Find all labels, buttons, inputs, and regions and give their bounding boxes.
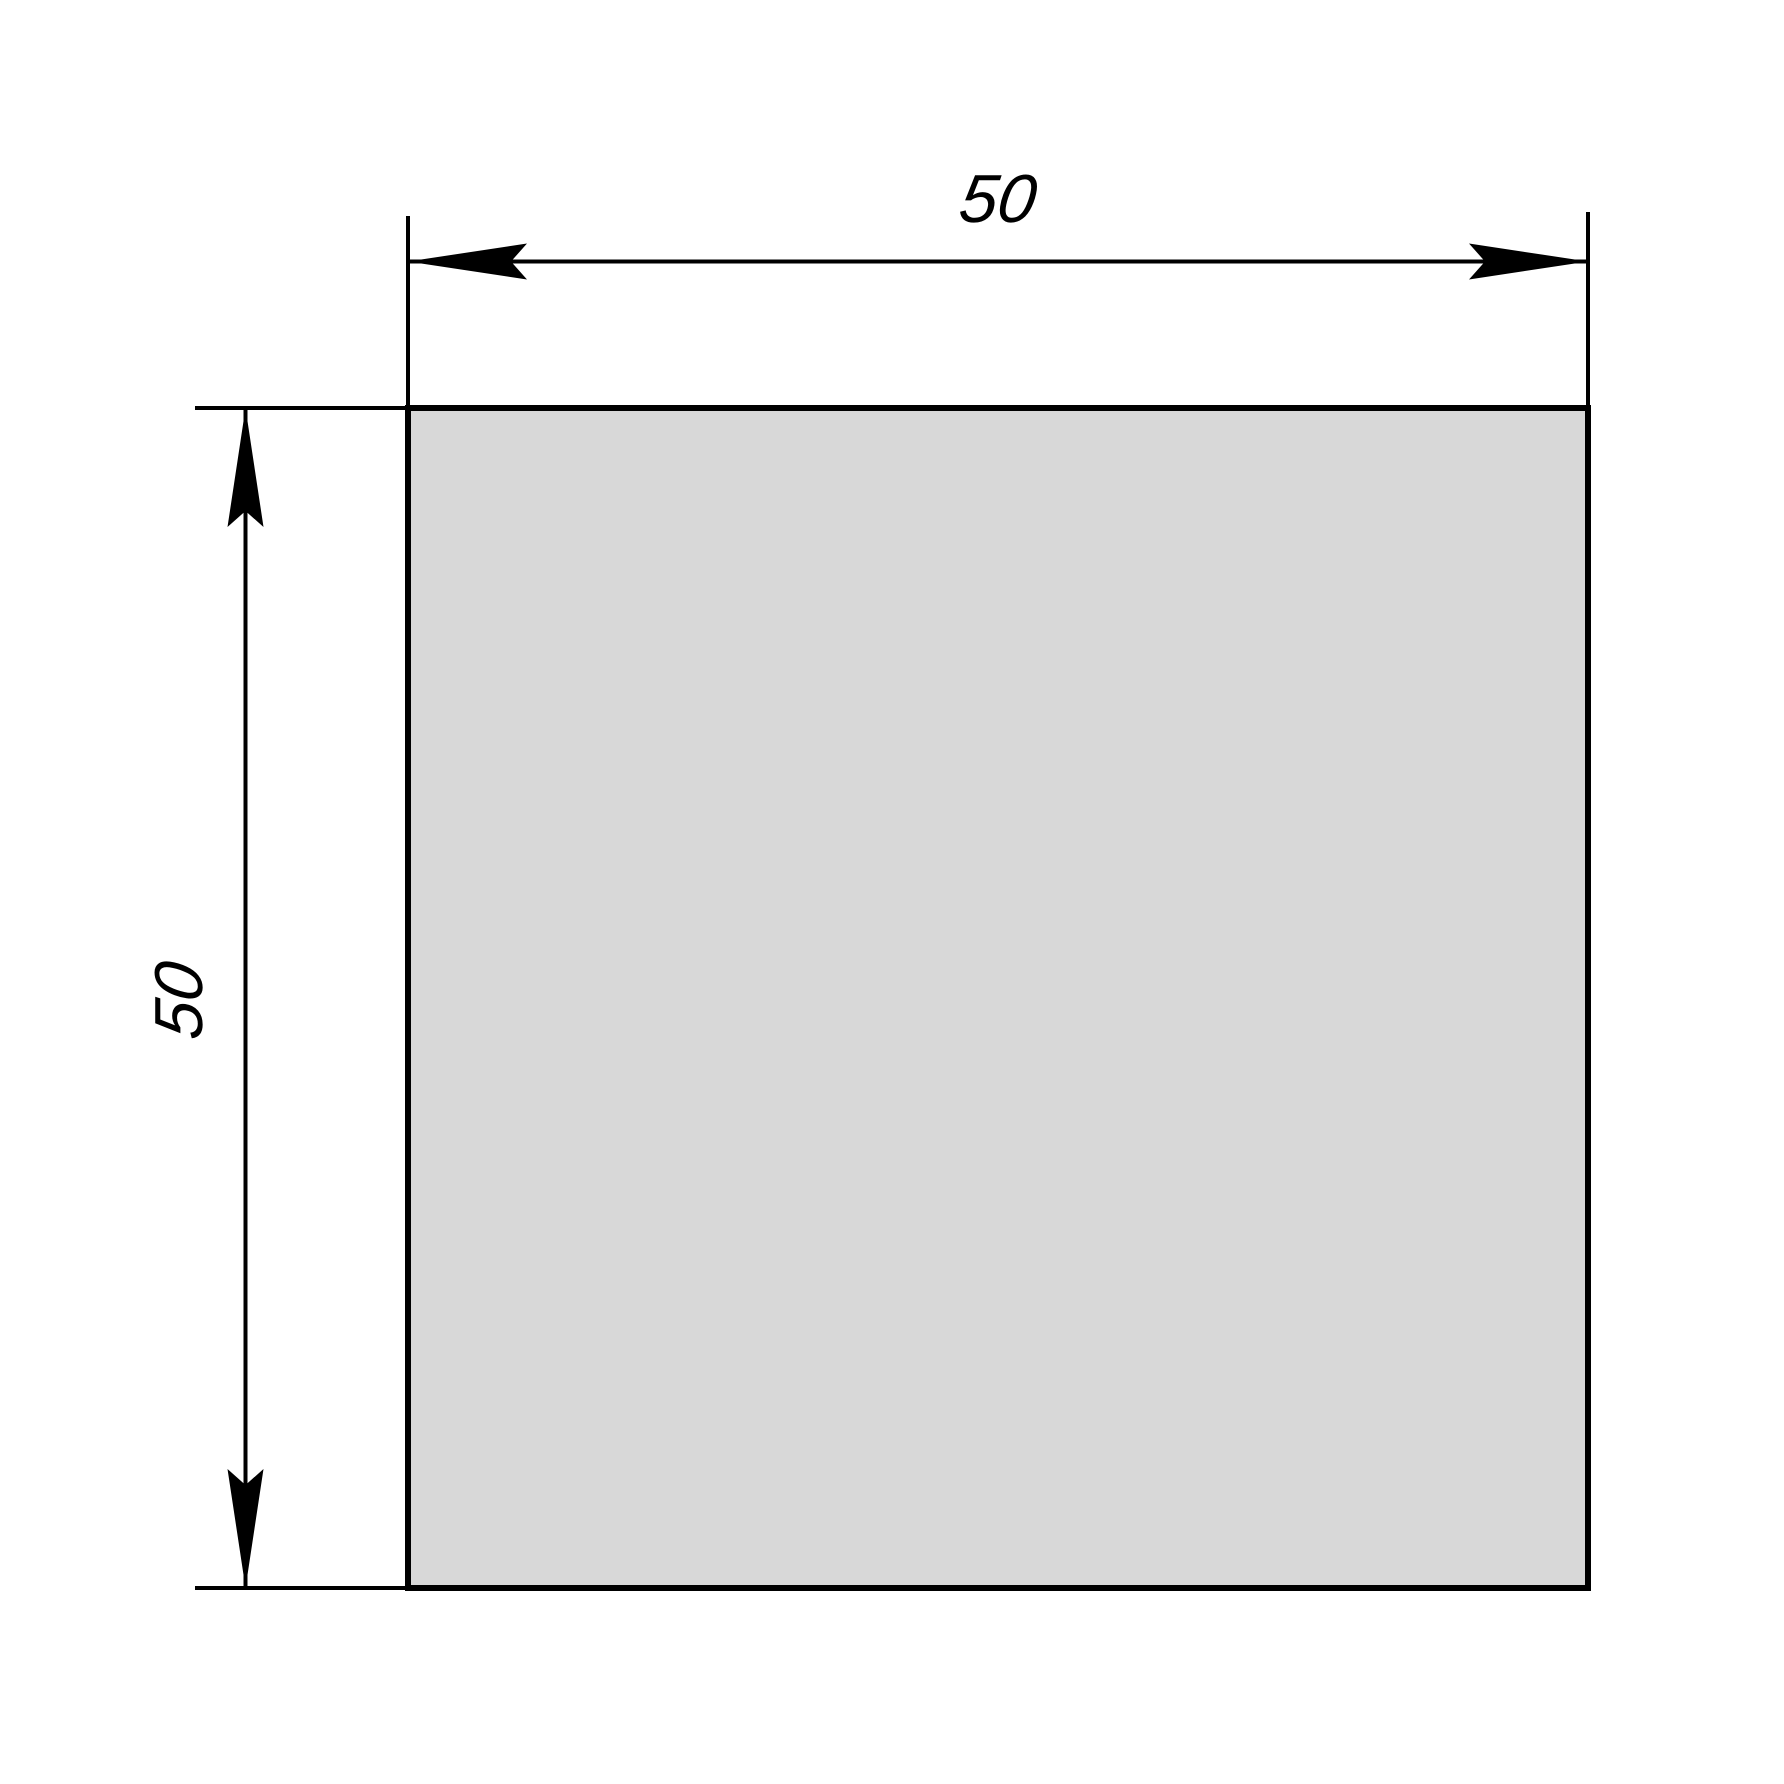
dimension-drawing: 50 50 xyxy=(0,0,1784,1784)
arrowhead-up-icon xyxy=(228,408,264,527)
horizontal-dimension-label: 50 xyxy=(955,161,1041,237)
square-part xyxy=(408,408,1588,1588)
arrowhead-down-icon xyxy=(228,1469,264,1588)
arrowhead-right-icon xyxy=(1469,244,1588,280)
drawing-canvas: 50 50 xyxy=(0,0,1784,1784)
arrowhead-left-icon xyxy=(408,244,527,280)
vertical-dimension-label: 50 xyxy=(141,957,217,1043)
